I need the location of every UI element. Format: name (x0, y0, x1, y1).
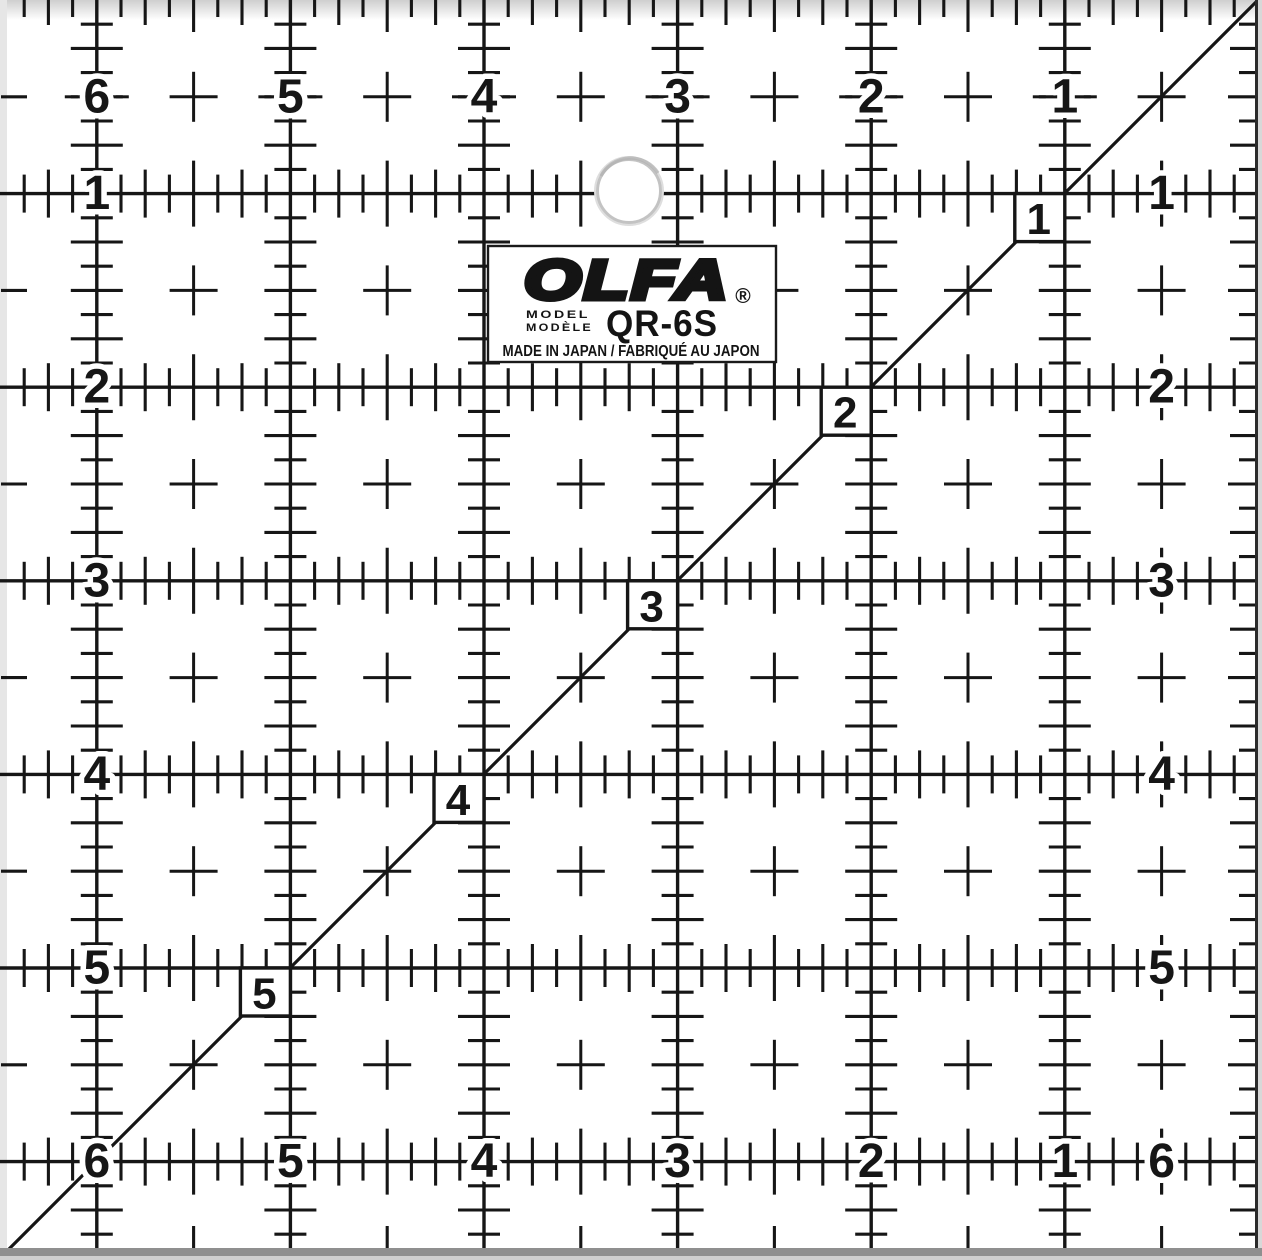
grid-number: 5 (277, 1135, 304, 1188)
model-word-en: MODEL (526, 309, 590, 321)
diagonal-number: 1 (1027, 195, 1051, 244)
grid-number: 4 (1148, 748, 1175, 801)
grid-number: 4 (471, 70, 498, 123)
right-edge-line (1255, 0, 1258, 1250)
grid-number: 6 (83, 1135, 110, 1188)
grid-number: 1 (1051, 1135, 1078, 1188)
product-photo: 12345 654321654321123456123456 OLFA ® MO… (0, 0, 1262, 1260)
grid-number: 4 (471, 1135, 498, 1188)
grid-number: 3 (1148, 554, 1175, 607)
bottom-edge-shade (0, 1256, 1262, 1260)
grid-number: 2 (858, 1135, 885, 1188)
origin-line: MADE IN JAPAN / FABRIQUÉ AU JAPON (503, 341, 760, 360)
grid-number: 3 (664, 70, 691, 123)
brand-logo-text: OLFA (524, 248, 730, 311)
grid-number: 2 (858, 70, 885, 123)
grid-number: 3 (664, 1135, 691, 1188)
grid-number: 4 (83, 748, 110, 801)
diagonal-number: 4 (446, 776, 471, 825)
hanging-hole (595, 157, 663, 225)
grid-number: 1 (1051, 70, 1078, 123)
diagonal-number: 2 (833, 389, 857, 438)
grid-number: 1 (83, 167, 110, 220)
grid-number: 5 (1148, 942, 1175, 995)
grid-number: 1 (1148, 167, 1175, 220)
quilting-ruler: 12345 654321654321123456123456 OLFA ® MO… (0, 0, 1262, 1260)
right-edge-shade (1258, 0, 1262, 1260)
grid-number: 6 (83, 70, 110, 123)
grid-number: 5 (277, 70, 304, 123)
bottom-edge-shadow (0, 1248, 1262, 1256)
top-edge-shade (0, 0, 1262, 20)
grid-number: 6 (1148, 1135, 1175, 1188)
grid-number: 3 (83, 554, 110, 607)
registered-trademark-symbol: ® (735, 285, 751, 308)
grid-number: 2 (1148, 361, 1175, 414)
model-number: QR-6S (606, 303, 718, 344)
brand-label: OLFA ® MODEL MODÈLE QR-6S MADE IN JAPAN … (488, 246, 776, 362)
left-edge-shade (0, 0, 7, 1260)
model-word-fr: MODÈLE (526, 321, 593, 334)
grid-number: 5 (83, 942, 110, 995)
grid-number: 2 (83, 361, 110, 414)
diagonal-number: 3 (639, 582, 663, 631)
diagonal-number: 5 (252, 970, 276, 1019)
